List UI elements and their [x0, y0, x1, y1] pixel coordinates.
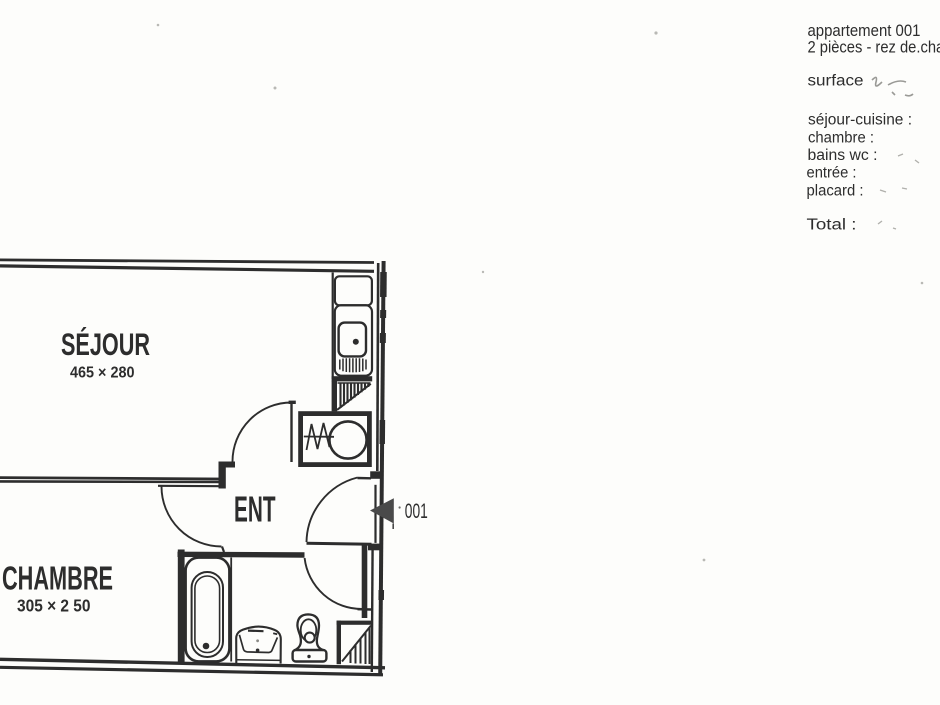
svg-text:appartement 001: appartement 001 [808, 22, 921, 40]
svg-text:surface: surface [808, 73, 864, 90]
svg-text:séjour-cuisine :: séjour-cuisine : [808, 112, 912, 129]
svg-text:CHAMBRE: CHAMBRE [2, 559, 113, 596]
svg-text:001: 001 [405, 500, 428, 523]
svg-text:Total :: Total : [807, 217, 857, 234]
svg-text:305 × 2 50: 305 × 2 50 [17, 596, 91, 616]
svg-text:entrée :: entrée : [807, 165, 857, 182]
svg-text:placard :: placard : [807, 183, 864, 200]
svg-text:ENT: ENT [234, 489, 276, 530]
svg-text:bains wc :: bains wc : [808, 147, 878, 164]
svg-text:SÉJOUR: SÉJOUR [61, 326, 150, 362]
svg-text:465 × 280: 465 × 280 [70, 365, 135, 382]
svg-text:chambre :: chambre : [808, 130, 874, 147]
svg-text:2 pièces - rez de.chaussée: 2 pièces - rez de.chaussée [808, 39, 940, 57]
